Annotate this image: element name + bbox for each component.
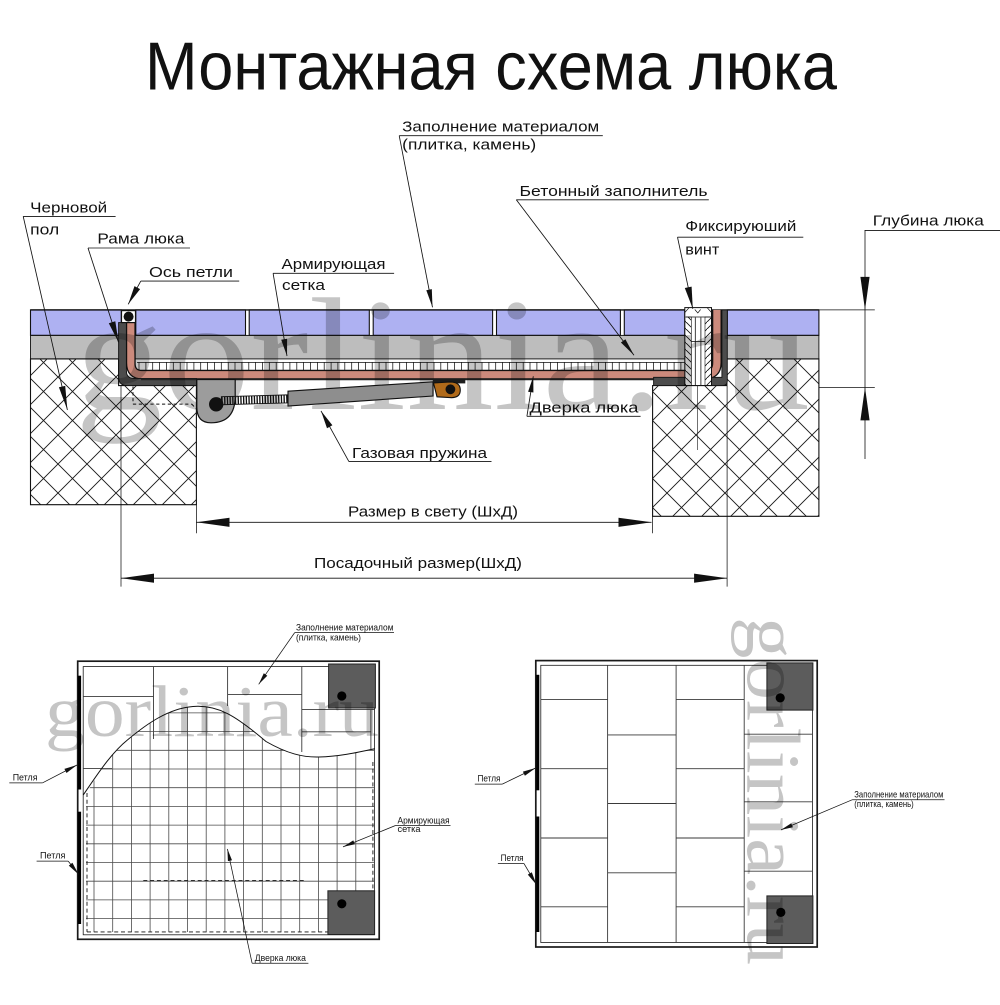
svg-text:Дверка люка: Дверка люка bbox=[255, 952, 307, 963]
svg-text:Петля: Петля bbox=[501, 852, 524, 863]
svg-text:Заполнение материалом: Заполнение материалом bbox=[854, 790, 943, 800]
svg-text:Газовая пружина: Газовая пружина bbox=[352, 446, 488, 462]
svg-text:gorlinia.ru: gorlinia.ru bbox=[731, 617, 815, 965]
svg-text:(плитка, камень): (плитка, камень) bbox=[854, 799, 913, 809]
svg-text:сетка: сетка bbox=[282, 278, 326, 294]
svg-text:gorlinia.ru: gorlinia.ru bbox=[75, 266, 810, 444]
svg-text:Ось петли: Ось петли bbox=[149, 265, 233, 281]
svg-text:Петля: Петля bbox=[13, 771, 38, 782]
svg-text:Размер в свету (ШхД): Размер в свету (ШхД) bbox=[348, 505, 518, 521]
svg-text:Дверка люка: Дверка люка bbox=[530, 401, 640, 417]
svg-text:Заполнение материалом: Заполнение материалом bbox=[296, 623, 394, 633]
svg-text:винт: винт bbox=[685, 242, 719, 258]
svg-text:Черновой: Черновой bbox=[30, 200, 107, 216]
svg-text:Монтажная схема люка: Монтажная схема люка bbox=[145, 29, 837, 105]
svg-text:Рама люка: Рама люка bbox=[97, 231, 185, 247]
svg-text:Петля: Петля bbox=[40, 850, 65, 861]
svg-text:пол: пол bbox=[30, 223, 59, 239]
svg-text:Глубина люка: Глубина люка bbox=[873, 214, 985, 230]
svg-text:Бетонный заполнитель: Бетонный заполнитель bbox=[520, 184, 708, 200]
svg-text:Заполнение материалом: Заполнение материалом bbox=[402, 120, 599, 136]
svg-text:gorlinia.ru: gorlinia.ru bbox=[45, 671, 379, 752]
svg-text:(плитка, камень): (плитка, камень) bbox=[402, 138, 536, 154]
svg-text:Армирующая: Армирующая bbox=[282, 257, 386, 273]
svg-text:Петля: Петля bbox=[478, 773, 501, 784]
svg-text:Фиксируюший: Фиксируюший bbox=[685, 219, 796, 235]
svg-text:Посадочный размер(ШхД): Посадочный размер(ШхД) bbox=[314, 556, 522, 572]
svg-text:(плитка, камень): (плитка, камень) bbox=[296, 633, 361, 643]
